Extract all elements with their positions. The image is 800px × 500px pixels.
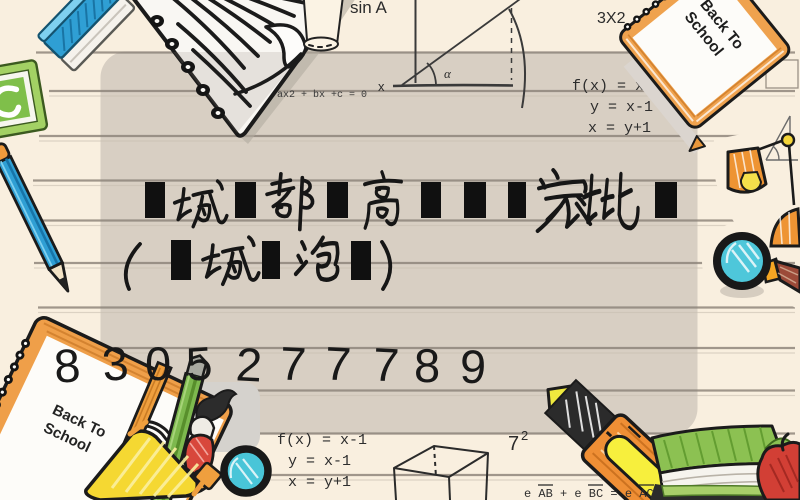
- svg-text:sin A: sin A: [350, 0, 388, 17]
- svg-text:7: 7: [508, 433, 519, 455]
- svg-text:x = y+1: x = y+1: [288, 474, 351, 491]
- svg-text:2: 2: [521, 428, 528, 443]
- svg-text:5: 5: [184, 336, 214, 391]
- svg-text:ax2 + bx +c = 0: ax2 + bx +c = 0: [277, 89, 367, 101]
- svg-text:7: 7: [279, 336, 308, 390]
- svg-text:7: 7: [324, 336, 353, 390]
- svg-text:x: x: [378, 79, 385, 94]
- svg-text:f(x) = x-1: f(x) = x-1: [277, 432, 367, 449]
- svg-text:x = y+1: x = y+1: [588, 120, 651, 137]
- svg-text:α: α: [444, 66, 452, 81]
- svg-text:8: 8: [414, 339, 440, 392]
- svg-text:8: 8: [52, 338, 82, 393]
- svg-text:0: 0: [145, 337, 171, 390]
- svg-text:2: 2: [235, 337, 264, 391]
- svg-text:y = x-1: y = x-1: [288, 453, 351, 470]
- svg-text:3: 3: [100, 336, 131, 391]
- svg-text:e AB + e BC = e AC: e AB + e BC = e AC: [524, 487, 654, 500]
- svg-text:3X2: 3X2: [597, 10, 626, 27]
- svg-text:7: 7: [372, 337, 401, 391]
- svg-text:y = x-1: y = x-1: [590, 99, 653, 116]
- svg-text:9: 9: [459, 340, 487, 394]
